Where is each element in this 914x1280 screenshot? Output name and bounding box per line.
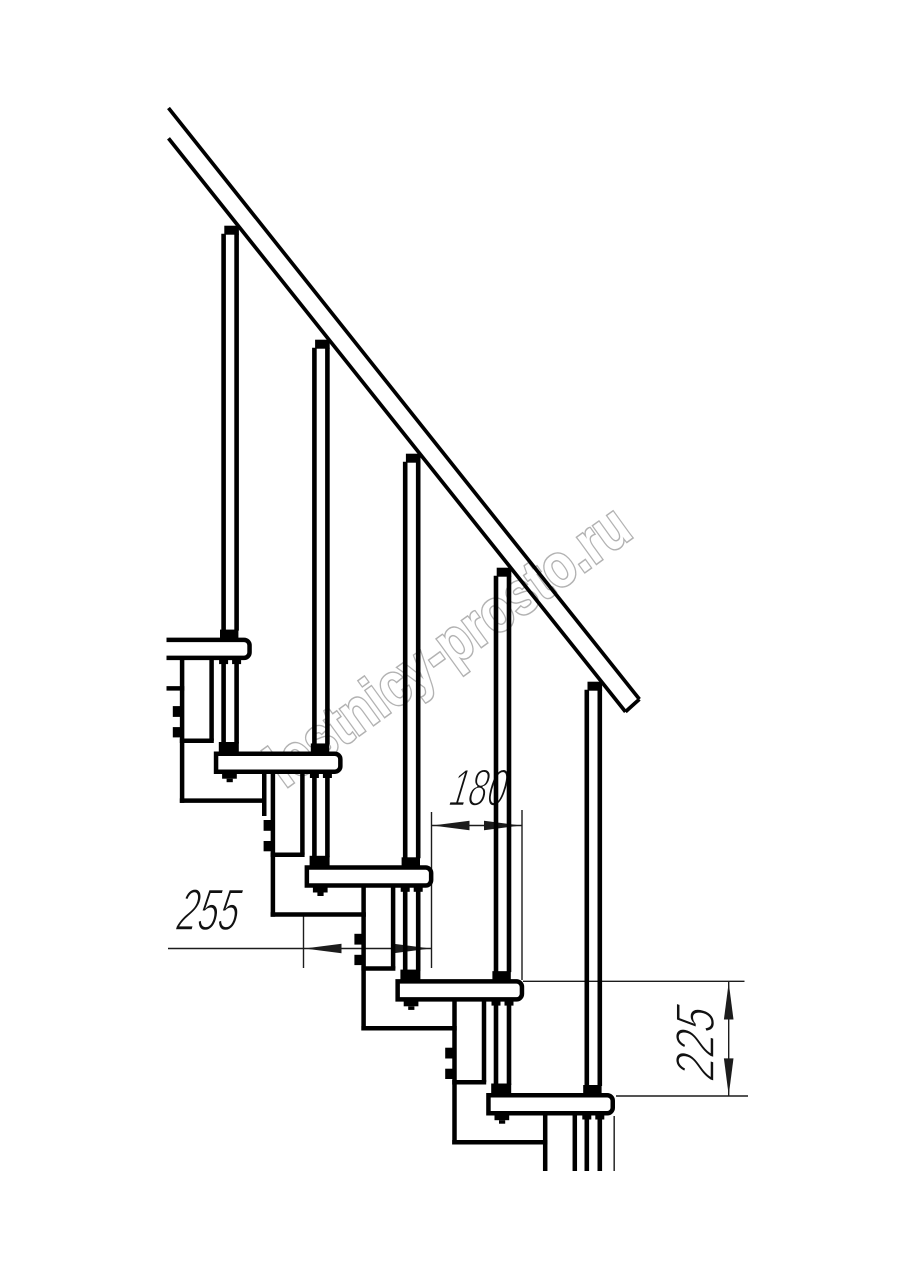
svg-text:255: 255	[173, 876, 247, 942]
svg-text:180: 180	[446, 760, 512, 818]
svg-text:225: 225	[664, 1001, 726, 1084]
